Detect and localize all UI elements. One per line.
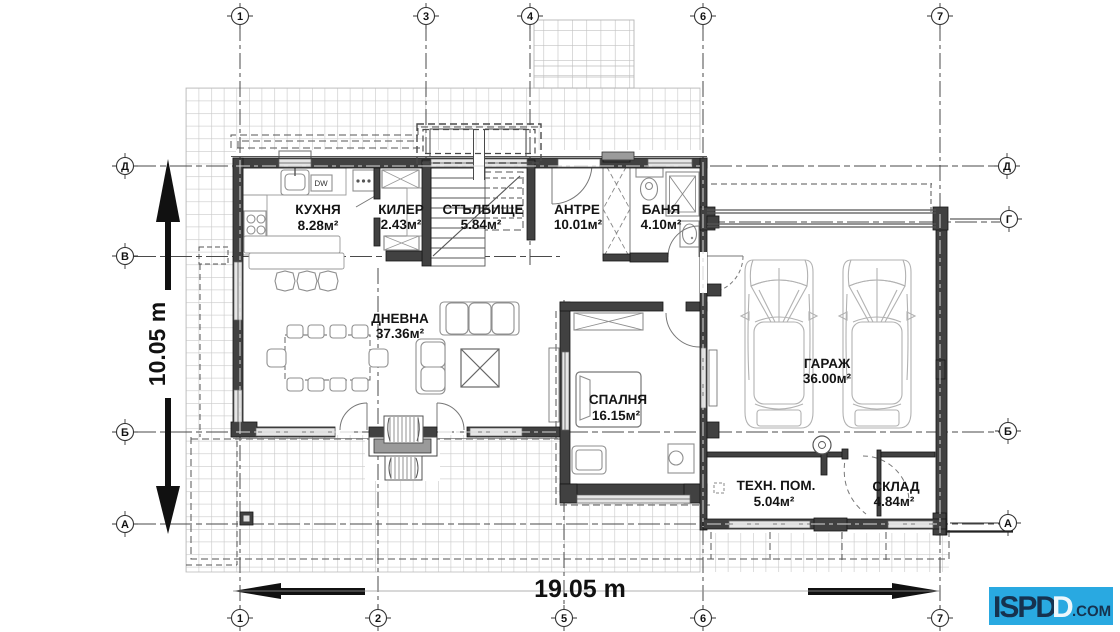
- svg-text:ТЕХН. ПОМ.: ТЕХН. ПОМ.: [737, 478, 816, 493]
- svg-text:4.84м²: 4.84м²: [874, 494, 915, 509]
- svg-text:БАНЯ: БАНЯ: [642, 202, 680, 217]
- svg-text:6: 6: [700, 613, 706, 625]
- svg-text:2.43м²: 2.43м²: [381, 217, 422, 232]
- svg-text:СПАЛНЯ: СПАЛНЯ: [589, 392, 647, 407]
- svg-text:Б: Б: [121, 427, 129, 439]
- svg-text:7: 7: [937, 11, 943, 23]
- svg-text:А: А: [1004, 518, 1012, 530]
- svg-text:ДНЕВНА: ДНЕВНА: [371, 311, 429, 326]
- svg-text:2: 2: [375, 613, 381, 625]
- svg-text:ГАРАЖ: ГАРАЖ: [804, 356, 851, 371]
- svg-text:4: 4: [527, 11, 534, 23]
- svg-text:СТЪЛБИЩЕ: СТЪЛБИЩЕ: [442, 202, 523, 217]
- svg-text:4.10м²: 4.10м²: [641, 217, 682, 232]
- svg-text:А: А: [121, 519, 129, 531]
- svg-text:5: 5: [561, 613, 567, 625]
- svg-text:1: 1: [237, 613, 243, 625]
- svg-text:10.01м²: 10.01м²: [554, 217, 603, 232]
- svg-text:В: В: [121, 251, 129, 263]
- svg-text:Б: Б: [1004, 426, 1012, 438]
- svg-text:Д: Д: [121, 161, 129, 173]
- svg-text:DW: DW: [314, 179, 328, 188]
- svg-text:Г: Г: [1006, 214, 1013, 226]
- svg-text:ISPD: ISPD: [993, 591, 1056, 624]
- svg-text:16.15м²: 16.15м²: [592, 408, 641, 423]
- svg-text:1: 1: [237, 11, 243, 23]
- svg-text:7: 7: [937, 613, 943, 625]
- svg-text:D: D: [1052, 591, 1073, 624]
- svg-text:СКЛАД: СКЛАД: [872, 479, 920, 494]
- svg-text:КИЛЕР: КИЛЕР: [378, 202, 423, 217]
- svg-text:8.28м²: 8.28м²: [298, 218, 339, 233]
- svg-text:АНТРЕ: АНТРЕ: [554, 202, 600, 217]
- svg-text:5.04м²: 5.04м²: [754, 494, 795, 509]
- svg-text:36.00м²: 36.00м²: [803, 371, 852, 386]
- svg-text:10.05 m: 10.05 m: [144, 302, 170, 386]
- svg-text:КУХНЯ: КУХНЯ: [295, 202, 340, 217]
- svg-text:.COM: .COM: [1072, 603, 1111, 620]
- svg-text:19.05 m: 19.05 m: [534, 575, 626, 603]
- svg-text:6: 6: [700, 11, 706, 23]
- svg-text:3: 3: [423, 11, 429, 23]
- svg-text:37.36м²: 37.36м²: [376, 326, 425, 341]
- svg-text:5.84м²: 5.84м²: [461, 217, 502, 232]
- svg-text:Д: Д: [1003, 161, 1011, 173]
